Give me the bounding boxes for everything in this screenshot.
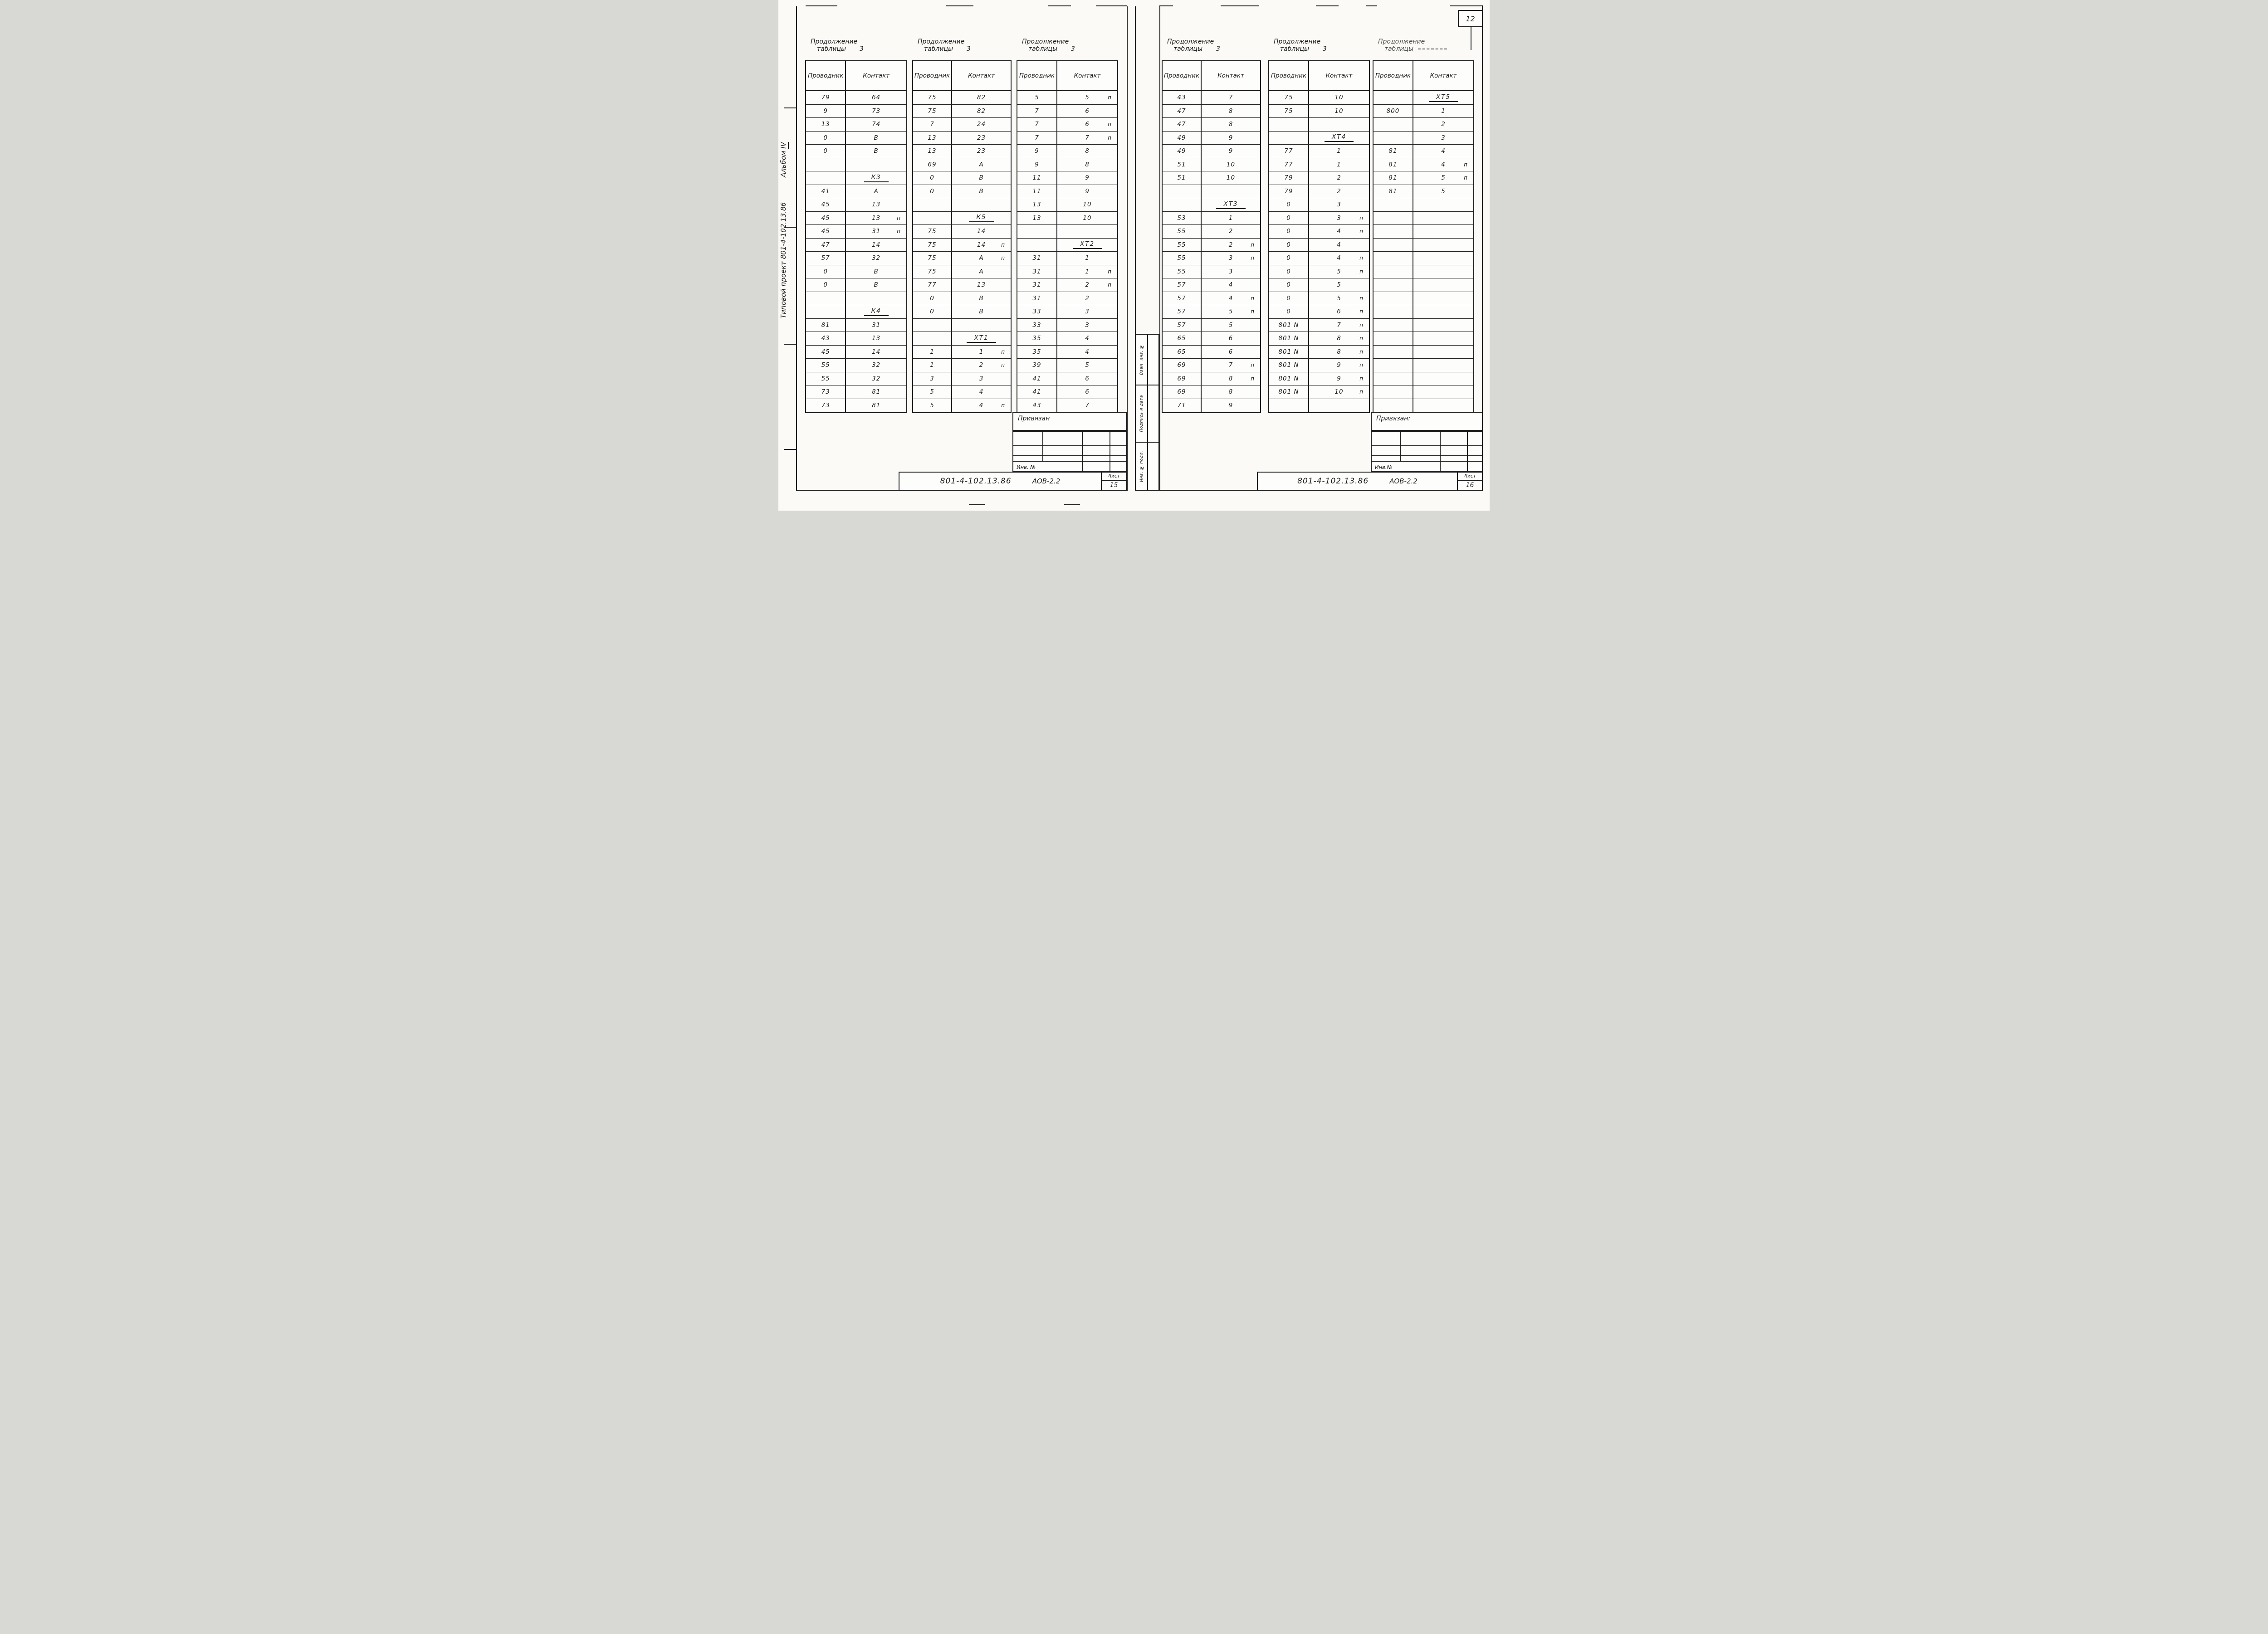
group-label: К3 (864, 174, 889, 182)
conductor-cell: 0 (1269, 292, 1309, 305)
top-dash (1048, 5, 1071, 6)
conductor-cell: 0 (1269, 305, 1309, 318)
conductor-cell: 5 (913, 385, 952, 399)
grid-line (1372, 445, 1482, 446)
conductor-cell: 49 (1163, 145, 1202, 158)
p-mark: п (1359, 376, 1363, 382)
contact-cell: 32 (846, 372, 906, 385)
table-title-line1: Продолжение (1167, 39, 1220, 46)
table-header-row: ПроводникКонтакт (806, 61, 906, 91)
contact-value: 31 (872, 228, 880, 235)
conductor-cell: 31 (1017, 292, 1057, 305)
contact-value: 7 (1085, 402, 1090, 409)
conductor-cell: 31 (1017, 278, 1057, 292)
binding-label: Привязан: (1376, 415, 1410, 422)
contact-cell: 8 (1057, 158, 1117, 171)
table-row: 75А (913, 265, 1011, 279)
table-row: 698 (1163, 385, 1260, 399)
contact-cell: 2п (952, 359, 1011, 372)
binding-box-right: Привязан: (1371, 412, 1483, 431)
contact-value: 8 (1229, 121, 1233, 128)
frame-line-sheet2-inner (1159, 6, 1160, 491)
conductor-cell: 45 (806, 198, 846, 211)
table-row: 1323 (913, 132, 1011, 145)
contact-cell: А (952, 265, 1011, 278)
document-code: АОВ-2.2 (1389, 477, 1417, 485)
conductor-cell (1374, 359, 1413, 372)
contact-value: 5 (1085, 361, 1090, 369)
contact-value: 13 (872, 201, 880, 208)
table-row: 801 N8п (1269, 346, 1369, 359)
contact-cell (1413, 265, 1473, 278)
contact-cell: 13 (846, 332, 906, 345)
contact-cell: 5 (1202, 319, 1260, 332)
faded-table-number (1418, 49, 1447, 49)
inventory-number-label: Инв. № (1017, 464, 1036, 470)
conductor-cell: 43 (1017, 399, 1057, 413)
contact-cell: 10 (1202, 158, 1260, 171)
conductor-cell: 69 (1163, 359, 1202, 372)
contact-value: 1 (1085, 268, 1090, 275)
table-header-row: ПроводникКонтакт (913, 61, 1011, 91)
table-title-line1: Продолжение (1378, 39, 1447, 46)
contact-value: 2 (1337, 188, 1341, 195)
contact-header: Контакт (846, 61, 906, 90)
table-row: 05п (1269, 292, 1369, 306)
grid-line (1082, 432, 1083, 471)
contact-value: 8 (1337, 348, 1341, 356)
contact-value: А (874, 188, 879, 195)
conductor-cell: 81 (1374, 185, 1413, 198)
contact-value: 4 (1441, 161, 1446, 168)
document-code: АОВ-2.2 (1032, 477, 1061, 485)
conductor-cell: 79 (806, 91, 846, 104)
table-row: 333 (1017, 319, 1117, 332)
conductor-cell: 31 (1017, 252, 1057, 265)
contact-value: 9 (1085, 188, 1090, 195)
conductor-cell (1374, 346, 1413, 359)
contact-cell: 14 (952, 225, 1011, 238)
conductor-cell: 13 (806, 118, 846, 131)
table-title-line1: Продолжение (811, 39, 864, 46)
conductor-cell: 0 (806, 278, 846, 292)
contact-cell: 23 (952, 132, 1011, 145)
conductor-cell (1374, 385, 1413, 399)
contact-cell (1413, 305, 1473, 318)
contact-header: Контакт (1202, 61, 1260, 90)
contact-value: 1 (1441, 107, 1446, 115)
contact-value: 3 (1441, 134, 1446, 141)
contact-cell: 32 (846, 359, 906, 372)
table-row (1374, 265, 1473, 279)
contact-value: В (874, 281, 879, 288)
contact-value: 6 (1085, 388, 1090, 395)
contact-value: 9 (1229, 402, 1233, 409)
contact-cell: 6 (1057, 105, 1117, 118)
contact-value: 14 (977, 241, 986, 249)
contact-cell: 3 (1413, 132, 1473, 145)
table-row: 801 N7п (1269, 319, 1369, 332)
contact-cell: 31 (846, 319, 906, 332)
table-row: 0В (806, 145, 906, 158)
contact-cell: 7п (1057, 132, 1117, 145)
table-row: 33 (913, 372, 1011, 386)
wiring-table-1: Продолжениетаблицы3ПроводникКонтакт79649… (805, 60, 907, 413)
table-number: 3 (967, 45, 971, 53)
p-mark: п (1359, 335, 1363, 341)
contact-cell: 4п (1413, 158, 1473, 171)
contact-value: 23 (977, 147, 986, 155)
contact-cell: 4п (1309, 252, 1369, 265)
contact-header: Контакт (1057, 61, 1117, 90)
sheet-label: Лист (1102, 473, 1126, 481)
conductor-cell: 0 (913, 305, 952, 318)
contact-value: В (874, 147, 879, 155)
table-row: 06п (1269, 305, 1369, 319)
table-row: 416 (1017, 385, 1117, 399)
table-title: Продолжениетаблицы (1378, 39, 1447, 53)
contact-value: 4 (1085, 335, 1090, 342)
contact-value: 32 (872, 254, 880, 262)
conductor-cell (913, 332, 952, 345)
conductor-cell (1374, 212, 1413, 225)
conductor-cell: 7 (913, 118, 952, 131)
contact-value: 3 (1337, 215, 1341, 222)
contact-value: 24 (977, 121, 986, 128)
conductor-cell: 0 (1269, 225, 1309, 238)
contact-cell (1413, 346, 1473, 359)
table-row: 7381 (806, 385, 906, 399)
table-title-line1: Продолжение (1022, 39, 1075, 46)
contact-cell: 2п (1057, 278, 1117, 292)
contact-value: 10 (1083, 215, 1091, 222)
contact-header: Контакт (1413, 61, 1473, 90)
contact-cell: 6 (1202, 346, 1260, 359)
table-row: 478 (1163, 105, 1260, 118)
contact-cell: 9п (1309, 359, 1369, 372)
contact-value: 3 (1085, 322, 1090, 329)
table-row: 4513п (806, 212, 906, 225)
contact-cell: 9 (1202, 132, 1260, 145)
conductor-cell: 45 (806, 346, 846, 359)
contact-cell: 2 (1309, 185, 1369, 198)
contact-cell: 32 (846, 252, 906, 265)
grid-line (1372, 455, 1482, 456)
contact-cell: 4п (1309, 225, 1369, 238)
contact-cell: А (846, 185, 906, 198)
conductor-cell: 55 (1163, 252, 1202, 265)
conductor-cell: 53 (1163, 212, 1202, 225)
table-row: 12п (913, 359, 1011, 372)
scan-dash (969, 504, 985, 505)
table-row: 5110 (1163, 158, 1260, 172)
table-row: 814 (1374, 145, 1473, 158)
table-row: 697п (1163, 359, 1260, 372)
contact-cell: 7п (1202, 359, 1260, 372)
contact-value: 8 (1229, 388, 1233, 395)
p-mark: п (1359, 295, 1363, 302)
table-row (1374, 292, 1473, 306)
contact-value: 6 (1085, 375, 1090, 382)
grid-line (1013, 461, 1126, 462)
contact-cell: 3п (1309, 212, 1369, 225)
table-row: 801 N9п (1269, 359, 1369, 372)
table-row: 3 (1374, 132, 1473, 145)
stamp-label-inv: Инв. № подл. (1139, 451, 1144, 482)
p-mark: п (1001, 255, 1005, 261)
document-number: 801-4-102.13.86 (940, 477, 1012, 486)
p-mark: п (1251, 255, 1254, 261)
contact-cell: 64 (846, 91, 906, 104)
title-bar-right: 801-4-102.13.86 АОВ-2.2 Лист 16 (1257, 472, 1483, 491)
table-number: 3 (860, 45, 864, 53)
conductor-cell: 0 (1269, 198, 1309, 211)
table-title-word: таблицы (817, 45, 846, 53)
contact-cell: В (846, 265, 906, 278)
grid-line (1372, 461, 1482, 462)
contact-value: 3 (979, 375, 984, 382)
p-mark: п (897, 228, 900, 234)
table-row: ХТ1 (913, 332, 1011, 346)
contact-value: 13 (872, 335, 880, 342)
conductor-cell: 47 (1163, 118, 1202, 131)
contact-cell: 2 (1202, 225, 1260, 238)
conductor-cell: 13 (913, 145, 952, 158)
contact-cell: 10 (1309, 105, 1369, 118)
stamp-label-podpis: Подпись и дата (1139, 395, 1144, 432)
frame-stub (1471, 27, 1471, 50)
p-mark: п (1359, 362, 1363, 368)
contact-value: 14 (872, 241, 880, 249)
conductor-cell: 3 (913, 372, 952, 385)
top-dash (1366, 5, 1377, 6)
conductor-cell (1374, 372, 1413, 385)
conductor-cell (1017, 239, 1057, 252)
contact-value: 2 (1229, 228, 1233, 235)
table-row: 575 (1163, 319, 1260, 332)
contact-cell: 13 (846, 198, 906, 211)
table-row: 5732 (806, 252, 906, 265)
table-row: 575п (1163, 305, 1260, 319)
contact-value: 8 (1229, 375, 1233, 382)
contact-cell: 10п (1309, 385, 1369, 399)
frame-line-sheet1-right (1127, 6, 1128, 491)
contact-value: 82 (977, 94, 986, 101)
table-row (1374, 305, 1473, 319)
table-row: 119 (1017, 185, 1117, 199)
contact-cell (1413, 278, 1473, 292)
contact-cell: 2п (1202, 239, 1260, 252)
contact-value: 3 (1229, 268, 1233, 275)
contact-cell: 1 (1202, 212, 1260, 225)
contact-cell: ХТ4 (1309, 132, 1369, 145)
conductor-cell (806, 171, 846, 185)
table-row: 719 (1163, 399, 1260, 413)
conductor-header: Проводник (913, 61, 952, 90)
contact-value: 9 (1337, 361, 1341, 369)
contact-cell: 81 (846, 399, 906, 413)
conductor-cell (913, 319, 952, 332)
conductor-cell: 51 (1163, 158, 1202, 171)
contact-value: 2 (979, 361, 984, 369)
contact-cell: 24 (952, 118, 1011, 131)
conductor-cell: 57 (1163, 292, 1202, 305)
contact-cell: К3 (846, 171, 906, 185)
conductor-cell (913, 212, 952, 225)
table-row: 792 (1269, 171, 1369, 185)
contact-cell: 82 (952, 105, 1011, 118)
table-title: Продолжениетаблицы3 (811, 39, 864, 53)
contact-cell: 8 (1202, 118, 1260, 131)
table-row: 76п (1017, 118, 1117, 132)
contact-cell: 1 (1057, 252, 1117, 265)
contact-cell: 6п (1057, 118, 1117, 131)
conductor-cell: 45 (806, 225, 846, 238)
document-number-cell: 801-4-102.13.86 АОВ-2.2 (899, 473, 1101, 490)
contact-cell (1413, 399, 1473, 413)
contact-cell: 13 (952, 278, 1011, 292)
table-row: 7514п (913, 239, 1011, 252)
table-row: 973 (806, 105, 906, 118)
conductor-cell: 57 (1163, 305, 1202, 318)
contact-value: 5 (1229, 322, 1233, 329)
table-row: ХТ5 (1374, 91, 1473, 105)
fold-tick (784, 449, 796, 450)
table-row: 574п (1163, 292, 1260, 306)
contact-value: 1 (1085, 254, 1090, 262)
group-label: К5 (969, 214, 993, 222)
contact-value: 6 (1229, 335, 1233, 342)
stamp-strip-blank-column (1148, 335, 1158, 490)
contact-cell: 1п (952, 346, 1011, 359)
conductor-cell (1374, 252, 1413, 265)
table-row: 5532 (806, 372, 906, 386)
contact-value: 3 (1229, 254, 1233, 262)
table-row (1374, 332, 1473, 346)
contact-cell: 3 (952, 372, 1011, 385)
p-mark: п (1359, 308, 1363, 315)
table-row: 4714 (806, 239, 906, 252)
conductor-cell: 55 (1163, 265, 1202, 278)
table-row: 76 (1017, 105, 1117, 118)
table-title-line2: таблицы3 (811, 46, 864, 53)
conductor-cell (1163, 185, 1202, 198)
table-row: 69А (913, 158, 1011, 172)
contact-value: 5 (1337, 281, 1341, 288)
conductor-cell: 51 (1163, 171, 1202, 185)
table-row: 4514 (806, 346, 906, 359)
stamp-label-vzam: Взам. инв. № (1139, 344, 1144, 375)
contact-cell (1413, 225, 1473, 238)
table-row: 54п (913, 399, 1011, 413)
contact-value: 10 (1227, 174, 1235, 181)
contact-cell (1413, 252, 1473, 265)
table-title-line2: таблицы3 (1022, 46, 1075, 53)
contact-value: 5 (1337, 295, 1341, 302)
table-row: 54 (913, 385, 1011, 399)
contact-cell: В (846, 145, 906, 158)
table-row (806, 292, 906, 306)
p-mark: п (1001, 402, 1005, 409)
table-row: 771 (1269, 145, 1369, 158)
table-row: 7510 (1269, 105, 1369, 118)
contact-value: 8 (1337, 335, 1341, 342)
wiring-table-3: Продолжениетаблицы3ПроводникКонтакт55п76… (1017, 60, 1118, 413)
contact-cell (846, 292, 906, 305)
contact-cell (1413, 319, 1473, 332)
contact-cell: 9 (1057, 185, 1117, 198)
table-row: К3 (806, 171, 906, 185)
contact-cell: 4 (1057, 346, 1117, 359)
stamp-cell: Взам. инв. № (1136, 335, 1147, 385)
conductor-cell: 81 (1374, 171, 1413, 185)
table-row: 437 (1017, 399, 1117, 413)
contact-cell: 2 (1309, 171, 1369, 185)
stamp-strip-labels: Взам. инв. № Подпись и дата Инв. № подл. (1136, 335, 1148, 490)
p-mark: п (1359, 349, 1363, 355)
contact-value: 2 (1337, 174, 1341, 181)
contact-value: 31 (872, 322, 880, 329)
conductor-cell: 81 (806, 319, 846, 332)
conductor-cell: 57 (1163, 319, 1202, 332)
table-row: 416 (1017, 372, 1117, 386)
p-mark: п (1251, 308, 1254, 315)
table-row: 7510 (1269, 91, 1369, 105)
conductor-cell: 75 (913, 239, 952, 252)
table-row (1374, 346, 1473, 359)
table-row: 574 (1163, 278, 1260, 292)
table-row (1017, 225, 1117, 239)
grid-line (1400, 432, 1401, 461)
contact-cell: 10 (1057, 212, 1117, 225)
table-row: 2 (1374, 118, 1473, 132)
contact-value: В (979, 188, 983, 195)
table-row: 531 (1163, 212, 1260, 225)
contact-cell: 5п (1202, 305, 1260, 318)
contact-value: 4 (979, 388, 984, 395)
conductor-cell: 75 (913, 265, 952, 278)
table-row (913, 198, 1011, 212)
conductor-cell: 5 (1017, 91, 1057, 104)
conductor-cell: 55 (806, 359, 846, 372)
table-row: 5532 (806, 359, 906, 372)
grid-line (1467, 432, 1468, 471)
p-mark: п (1251, 242, 1254, 248)
conductor-cell: 0 (1269, 265, 1309, 278)
contact-value: 9 (1229, 147, 1233, 155)
contact-cell: 3 (1057, 319, 1117, 332)
stamp-cell: Подпись и дата (1136, 385, 1147, 443)
conductor-cell: 801 N (1269, 359, 1309, 372)
p-mark: п (1001, 242, 1005, 248)
conductor-cell (1374, 132, 1413, 145)
table-title-line2: таблицы3 (1274, 46, 1327, 53)
contact-value: 7 (1337, 322, 1341, 329)
group-label: ХТ1 (967, 334, 996, 343)
sheet-cell: Лист 16 (1457, 473, 1482, 490)
contact-cell: 3п (1202, 252, 1260, 265)
table-title-word: таблицы (924, 45, 953, 53)
table-row (1374, 198, 1473, 212)
contact-value: В (979, 295, 983, 302)
contact-cell: В (952, 292, 1011, 305)
table-body: 43747847849949951105110ХТ3531552552п553п… (1163, 91, 1260, 412)
contact-value: 3 (1337, 201, 1341, 208)
contact-cell: 6п (1309, 305, 1369, 318)
table-title: Продолжениетаблицы3 (1167, 39, 1220, 53)
p-mark: п (897, 215, 900, 221)
conductor-cell (1269, 399, 1309, 413)
